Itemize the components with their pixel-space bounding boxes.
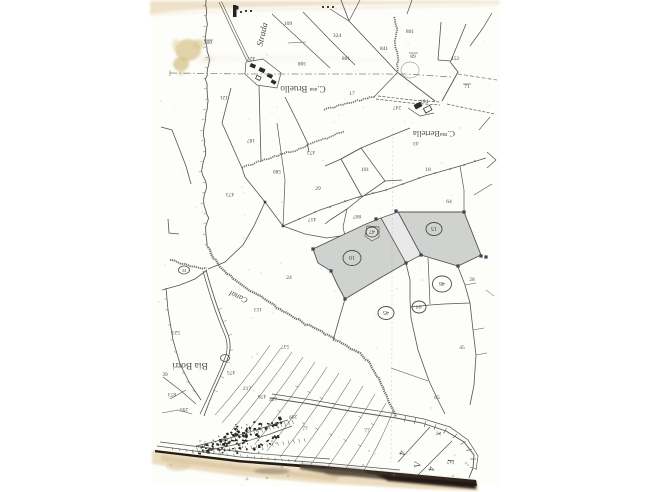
svg-text:427: 427 (247, 55, 256, 61)
svg-text:537: 537 (281, 343, 290, 349)
svg-text:104: 104 (420, 99, 429, 105)
svg-text:71: 71 (464, 84, 470, 90)
svg-text:77: 77 (364, 428, 370, 434)
svg-text:89: 89 (410, 54, 416, 60)
svg-text:217: 217 (243, 386, 252, 392)
svg-text:15: 15 (431, 225, 437, 231)
svg-text:24: 24 (286, 275, 292, 281)
svg-text:77: 77 (302, 426, 308, 432)
svg-text:308: 308 (298, 60, 307, 66)
svg-text:101: 101 (361, 167, 370, 173)
svg-text:29: 29 (315, 186, 321, 192)
svg-text:297: 297 (289, 413, 298, 419)
svg-text:475: 475 (227, 369, 236, 375)
svg-text:17: 17 (349, 91, 355, 97)
svg-text:841: 841 (380, 46, 389, 52)
svg-text:109: 109 (284, 21, 293, 27)
svg-text:65: 65 (434, 395, 440, 401)
svg-text:45: 45 (459, 345, 465, 351)
svg-text:247: 247 (393, 104, 402, 110)
svg-text:807: 807 (353, 213, 362, 219)
svg-text:187: 187 (247, 137, 256, 143)
svg-text:295: 295 (180, 406, 189, 412)
svg-text:476: 476 (258, 393, 267, 399)
svg-text:121: 121 (220, 94, 229, 100)
svg-text:873: 873 (168, 391, 177, 397)
svg-text:46: 46 (439, 280, 445, 286)
svg-text:45: 45 (383, 309, 389, 315)
svg-text:10: 10 (349, 254, 355, 260)
svg-text:113: 113 (254, 306, 262, 312)
svg-text:580: 580 (273, 168, 282, 174)
svg-text:300: 300 (204, 40, 213, 46)
svg-text:801: 801 (406, 29, 415, 35)
svg-text:324: 324 (333, 33, 342, 39)
svg-text:473: 473 (226, 191, 235, 197)
svg-text:C.asa Bruello: C.asa Bruello (280, 84, 326, 94)
svg-text:34: 34 (182, 268, 187, 273)
svg-text:64: 64 (446, 199, 452, 205)
svg-text:523: 523 (172, 329, 181, 335)
svg-text:327: 327 (269, 397, 278, 403)
svg-text:18: 18 (425, 167, 431, 173)
svg-text:417: 417 (308, 216, 317, 222)
svg-text:Bia Borri: Bia Borri (172, 360, 208, 370)
svg-text:C.maBertella: C.maBertella (413, 129, 455, 139)
svg-text:861: 861 (342, 56, 351, 62)
svg-text:472: 472 (307, 149, 316, 155)
svg-text:452: 452 (451, 56, 460, 62)
svg-text:28: 28 (469, 277, 475, 283)
svg-text:47: 47 (369, 228, 375, 234)
svg-text:43: 43 (413, 140, 419, 146)
